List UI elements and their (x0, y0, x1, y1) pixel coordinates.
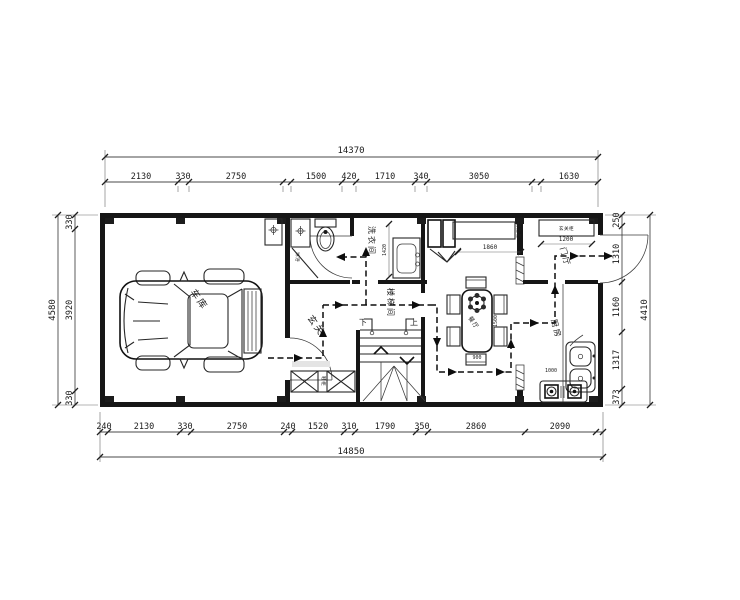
dim-bot-6: 310 (341, 422, 356, 432)
dim-bot-3: 2750 (227, 422, 247, 432)
dim-right-4: 373 (612, 389, 622, 404)
dim-top-2: 2750 (226, 172, 246, 182)
dim-bot-10: 2090 (550, 422, 570, 432)
dim-left-2: 330 (65, 390, 75, 405)
room-label-entry-cabinet: 玄关柜 (559, 225, 574, 232)
laundry-room: 洗衣间 1420 (367, 221, 420, 280)
dimension-chain-right: 250 1310 1160 1317 373 4410 (605, 212, 656, 408)
floorplan-canvas: 14370 2130 330 2750 1500 420 1710 340 30… (0, 0, 740, 600)
dim-laundry: 1420 (382, 244, 388, 256)
dim-top-7: 3050 (469, 172, 489, 182)
dim-bot-9: 2860 (466, 422, 486, 432)
dim-top-total: 14370 (337, 146, 364, 156)
dim-bot-2: 330 (177, 422, 192, 432)
hall-shoe-cabinet: 鞋柜 (291, 371, 355, 392)
washer (393, 238, 420, 278)
walls (100, 213, 603, 407)
room-label-sideboard: 餐边柜 (515, 223, 522, 238)
dim-table-width: 900 (472, 355, 481, 361)
dim-top-5: 1710 (375, 172, 395, 182)
toilet (315, 219, 336, 251)
dim-bot-4: 240 (280, 422, 295, 432)
dim-bot-7: 1790 (375, 422, 395, 432)
room-label-kitchen: 厨房 (549, 318, 564, 340)
circulation-path (268, 247, 613, 376)
dim-right-3: 1317 (612, 350, 622, 370)
room-label-stairwell: 楼梯间 (386, 288, 396, 318)
dim-bottom-total: 14850 (337, 447, 364, 457)
dim-left-0: 330 (65, 214, 75, 229)
dim-top-6: 340 (413, 172, 428, 182)
room-label-laundry: 洗衣间 (367, 226, 377, 256)
dim-top-8: 1630 (559, 172, 579, 182)
dim-bot-5: 1520 (308, 422, 328, 432)
dim-sideboard: 1860 (483, 244, 498, 251)
stair-up-label: 上 (410, 318, 420, 327)
dim-table-length: 1500 (493, 315, 499, 327)
dim-right-total: 4410 (640, 299, 650, 321)
dim-right-2: 1160 (612, 297, 622, 317)
dim-bot-0: 240 (96, 422, 111, 432)
foyer: 玄关柜 1200 门厅 (538, 220, 595, 268)
dim-top-3: 1500 (306, 172, 326, 182)
main-entry-door (600, 235, 648, 283)
room-label-hall-cabinet: 鞋柜 (320, 376, 327, 386)
bathroom-basin (291, 219, 310, 247)
dim-top-4: 420 (341, 172, 356, 182)
room-label-dining: 餐厅 (466, 315, 481, 331)
dim-kitchen-counter: 1000 (545, 368, 557, 374)
dimension-chain-bottom: 240 2130 330 2750 240 1520 310 1790 350 … (96, 412, 606, 462)
dim-bot-8: 350 (414, 422, 429, 432)
dim-top-1: 330 (175, 172, 190, 182)
kitchen-sink (566, 335, 596, 392)
dim-bot-1: 2130 (134, 422, 154, 432)
dimension-chain-left: 330 3920 330 4580 (48, 212, 98, 408)
dim-left-1: 3920 (65, 300, 75, 320)
table-plant (468, 293, 486, 313)
floorplan-page: 14370 2130 330 2750 1500 420 1710 340 30… (0, 0, 740, 600)
stair-down-label: 下 (359, 318, 369, 327)
dim-left-total: 4580 (48, 299, 58, 321)
shower-screen: 淋浴 (292, 248, 318, 278)
sideboard: 餐边柜 1860 (453, 222, 524, 255)
dim-right-1: 1310 (612, 244, 622, 264)
room-label-shower: 淋浴 (294, 252, 301, 262)
entry-cabinet: 玄关柜 1200 (538, 220, 595, 247)
car: 车库 (120, 269, 262, 372)
dim-right-0: 250 (612, 212, 622, 227)
dining-table: 餐厅 1500 900 (447, 277, 507, 365)
dim-top-0: 2130 (131, 172, 151, 182)
dim-entry-cabinet: 1200 (559, 236, 574, 243)
kitchen: 厨房 1000 (540, 284, 596, 402)
room-label-garage: 车库 (188, 287, 211, 313)
bathroom-fixtures: 淋浴 (265, 219, 336, 278)
dimension-chain-top: 14370 2130 330 2750 1500 420 1710 340 30… (102, 146, 601, 207)
corner-cabinet (428, 220, 461, 262)
stair-direction-marks: 下 上 (359, 318, 420, 335)
